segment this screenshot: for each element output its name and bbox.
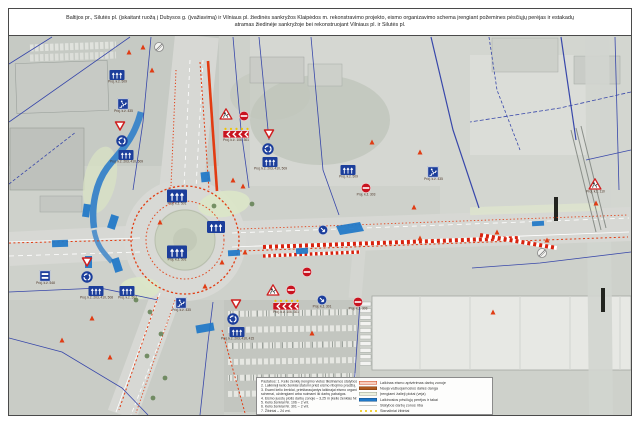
legend-swatch-dots [359,409,377,412]
map-area[interactable]: Proj. k.ž. 509Proj. k.ž. 435Proj. k.ž. 2… [9,36,631,415]
legend-label: Statybos darbų zonos riba [380,403,423,408]
legend-label: Signaliniai žibintai [380,409,409,412]
legend-label: Įrengiami žalieji plotai (veja) [380,392,426,397]
aerial-base-map [9,36,631,415]
notes-block: Pastabos: 1. Kelio ženklų įrengimo vieto… [261,380,357,412]
legend-row: Signaliniai žibintai [359,408,490,412]
title-block: Baltijos pr., Šilutės pl. (įskaitant ruo… [9,9,631,36]
page: { "title": { "line1": "Baltijos pr., Šil… [0,0,640,422]
legend: Laikinas eismo aptvėrimas darbų zonojeNa… [359,380,490,412]
legend-swatch-pale [359,392,377,396]
drawing-title-line1: Baltijos pr., Šilutės pl. (įskaitant ruo… [18,15,621,22]
drawing-title-line2: atramas žiedinėje sankryžoje bei rekonst… [18,22,621,29]
note-line: 7. Žibintai – 24 vnt. [261,409,357,412]
legend-swatch-blue [359,398,377,402]
drawing-sheet: Baltijos pr., Šilutės pl. (įskaitant ruo… [8,8,632,416]
legend-swatch-brown [359,387,377,391]
legend-swatch-line [359,406,377,407]
legend-label: Laikinas eismo aptvėrimas darbų zonoje [380,381,446,386]
notes-legend-panel: Pastabos: 1. Kelio ženklų įrengimo vieto… [256,377,493,415]
legend-swatch-outline [359,381,377,385]
legend-label: Laikinosios pėsčiųjų perėjos ir takai [380,397,438,402]
legend-label: Nauja važiuojamosios dalies danga [380,386,438,391]
